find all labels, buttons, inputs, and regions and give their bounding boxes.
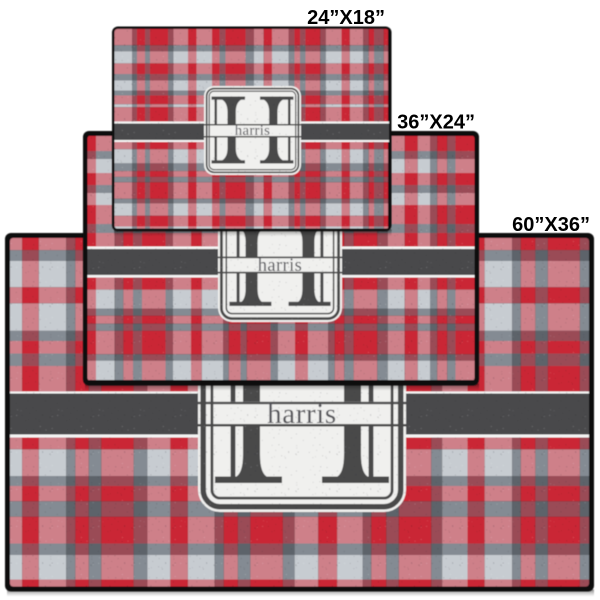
svg-text:60”X36”: 60”X36” xyxy=(512,214,590,236)
svg-text:36”X24”: 36”X24” xyxy=(397,112,475,134)
svg-text:24”X18”: 24”X18” xyxy=(307,7,385,29)
